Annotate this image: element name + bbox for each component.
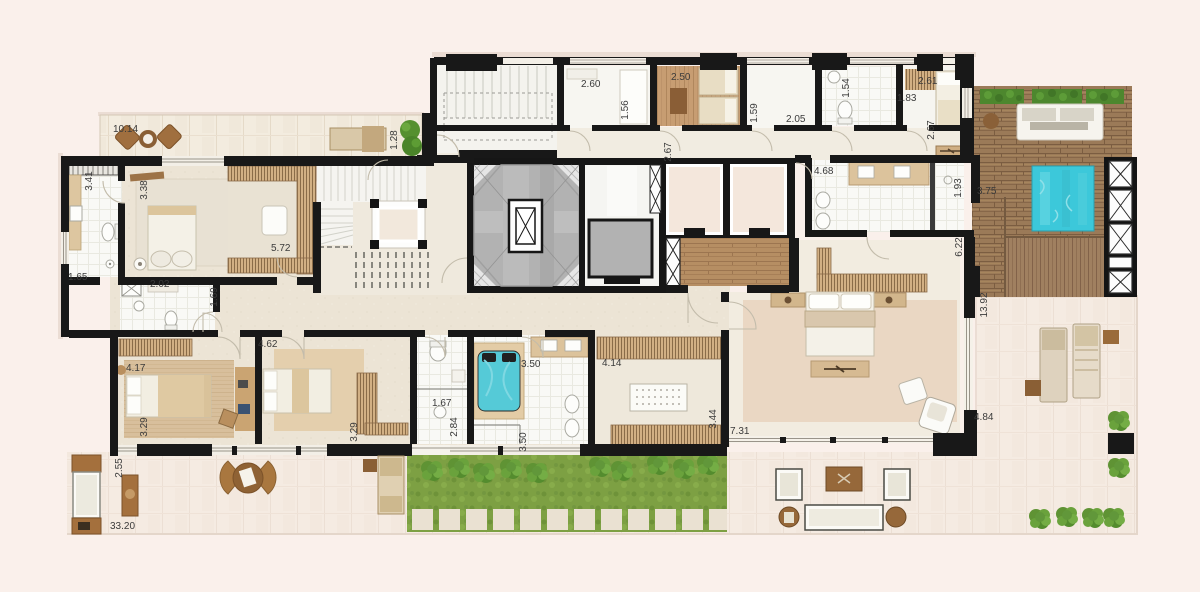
svg-text:4.68: 4.68 — [814, 166, 834, 177]
svg-text:2.67: 2.67 — [663, 142, 674, 162]
svg-text:1.83: 1.83 — [897, 93, 917, 104]
svg-text:3.75: 3.75 — [977, 186, 997, 197]
svg-text:1.59: 1.59 — [749, 103, 760, 123]
svg-text:4.84: 4.84 — [974, 412, 994, 423]
svg-text:1.69: 1.69 — [209, 287, 220, 307]
svg-text:3.29: 3.29 — [139, 417, 150, 437]
svg-text:6.22: 6.22 — [954, 237, 965, 257]
svg-text:2.84: 2.84 — [449, 417, 460, 437]
svg-text:10.14: 10.14 — [113, 124, 138, 135]
svg-text:4.17: 4.17 — [126, 363, 146, 374]
svg-text:1.56: 1.56 — [620, 100, 631, 120]
svg-text:2.60: 2.60 — [581, 79, 601, 90]
svg-text:4.14: 4.14 — [602, 358, 622, 369]
svg-text:2.55: 2.55 — [114, 458, 125, 478]
svg-text:2.02: 2.02 — [150, 279, 170, 290]
svg-text:3.41: 3.41 — [84, 171, 95, 191]
svg-text:1.28: 1.28 — [389, 130, 400, 150]
svg-text:2.61: 2.61 — [918, 76, 938, 87]
svg-text:3.38: 3.38 — [139, 180, 150, 200]
svg-text:3.44: 3.44 — [708, 409, 719, 429]
svg-text:2.05: 2.05 — [786, 114, 806, 125]
svg-text:7.31: 7.31 — [730, 426, 750, 437]
svg-text:4.62: 4.62 — [258, 339, 278, 350]
svg-text:2.67: 2.67 — [926, 120, 937, 140]
svg-text:1.54: 1.54 — [841, 78, 852, 98]
svg-text:5.72: 5.72 — [271, 243, 291, 254]
svg-text:1.65: 1.65 — [68, 272, 88, 283]
svg-text:33.20: 33.20 — [110, 521, 135, 532]
svg-text:1.67: 1.67 — [432, 398, 452, 409]
svg-text:13.92: 13.92 — [979, 292, 990, 317]
svg-text:3.50: 3.50 — [518, 432, 529, 452]
svg-text:3.50: 3.50 — [521, 359, 541, 370]
svg-text:3.29: 3.29 — [349, 422, 360, 442]
svg-text:1.93: 1.93 — [953, 178, 964, 198]
svg-text:2.50: 2.50 — [671, 72, 691, 83]
